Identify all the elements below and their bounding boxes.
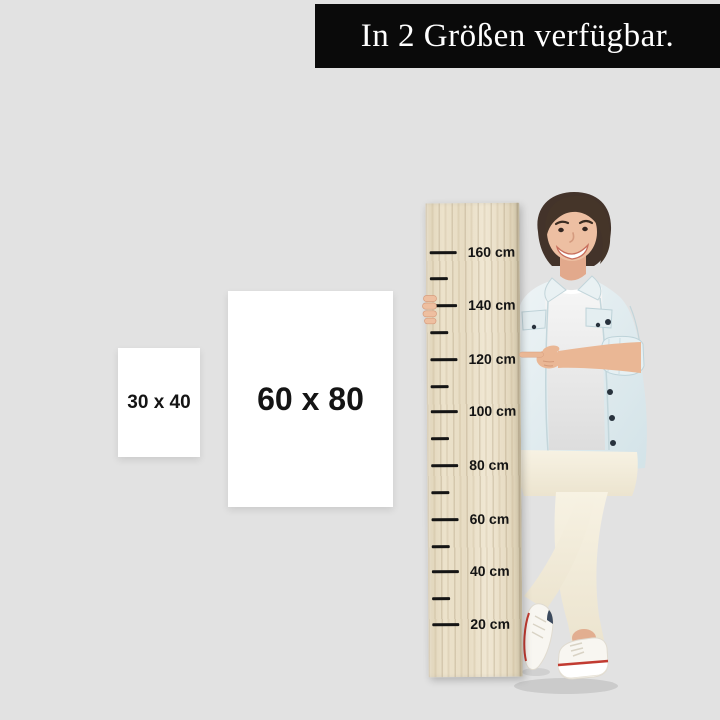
banner-text: In 2 Größen verfügbar. — [361, 18, 674, 55]
tick-mark — [430, 277, 448, 280]
ruler-tick-label: 60 cm — [470, 512, 510, 526]
ruler-tick — [431, 484, 521, 501]
ruler-tick: 40 cm — [432, 563, 522, 580]
ruler-tick-label: 100 cm — [469, 404, 517, 418]
ruler-tick-label: 160 cm — [468, 245, 516, 259]
ruler-tick — [430, 270, 520, 287]
ruler-tick: 160 cm — [430, 244, 520, 261]
ruler-tick: 80 cm — [431, 457, 521, 474]
tick-mark — [432, 623, 459, 626]
ruler-tick-label: 40 cm — [470, 564, 510, 578]
tick-mark — [431, 437, 449, 440]
tick-mark — [432, 597, 450, 600]
tick-mark — [432, 518, 459, 521]
size-option-30x40-label: 30 x 40 — [127, 392, 190, 414]
product-size-infographic: In 2 Größen verfügbar. 30 x 40 60 x 80 — [0, 0, 720, 720]
tick-mark — [431, 464, 458, 467]
tick-mark — [432, 570, 459, 573]
pants — [519, 450, 638, 496]
tick-mark — [431, 410, 458, 413]
size-option-30x40: 30 x 40 — [118, 348, 200, 457]
size-option-60x80-label: 60 x 80 — [257, 381, 364, 418]
size-option-60x80: 60 x 80 — [228, 291, 393, 507]
floor-shadow — [514, 678, 618, 694]
ruler-tick: 60 cm — [431, 511, 521, 528]
ruler-tick — [432, 590, 522, 607]
tick-mark — [431, 491, 449, 494]
woman-figure — [500, 190, 675, 700]
tick-mark — [430, 251, 457, 254]
ruler-tick — [432, 538, 522, 555]
ruler-tick — [431, 378, 521, 395]
ruler-tick: 100 cm — [431, 403, 521, 420]
ruler-tick: 20 cm — [432, 616, 522, 633]
height-ruler: 160 cm 140 cm 120 cm 100 cm 80 cm 60 cm … — [425, 203, 522, 678]
banner: In 2 Größen verfügbar. — [315, 4, 720, 68]
woman-pointing-hand — [418, 288, 650, 380]
gripping-fingers — [423, 296, 437, 324]
ruler-tick — [431, 430, 521, 447]
tick-mark — [431, 385, 449, 388]
ruler-tick-label: 20 cm — [470, 617, 510, 631]
tick-mark — [432, 545, 450, 548]
ruler-tick-label: 80 cm — [469, 458, 509, 472]
